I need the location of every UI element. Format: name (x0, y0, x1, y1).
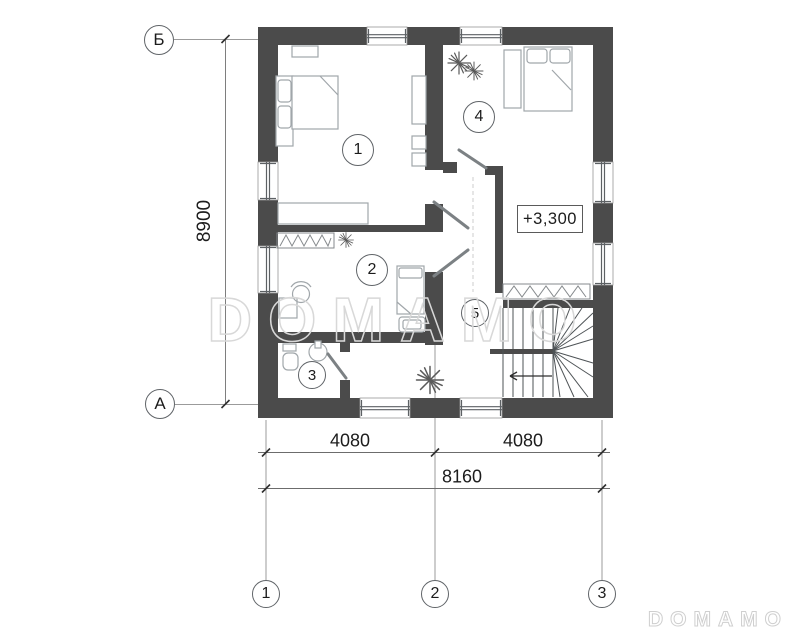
room-number-label: 4 (475, 108, 484, 126)
window-icon (258, 246, 278, 293)
axis-marker-1: 1 (252, 580, 280, 608)
interior-wall (340, 343, 350, 352)
stairwell-wall (495, 175, 503, 293)
dimension-height-total: 8900 (194, 200, 216, 242)
axis-label: Б (153, 30, 164, 50)
floor-plan-canvas: Б А 1 2 3 8900 4080 4080 8160 +3,300 1 2… (0, 0, 800, 640)
elevation-value: +3,300 (523, 210, 577, 229)
axis-label: 1 (262, 585, 271, 603)
axis-marker-b: Б (144, 25, 174, 55)
interior-wall (425, 45, 443, 170)
elevation-mark: +3,300 (517, 205, 583, 233)
room-number-4: 4 (463, 101, 495, 133)
interior-wall (485, 166, 503, 175)
stair-direction-arrow (510, 372, 552, 380)
window-icon (593, 162, 613, 203)
dresser-icon (278, 203, 368, 224)
room-number-2: 2 (356, 254, 388, 286)
toilet-icon (283, 344, 298, 370)
wardrobe-icon (277, 233, 334, 248)
shelf-icon (412, 76, 426, 166)
plant-icon (339, 233, 354, 248)
doors (328, 150, 486, 378)
plant-icon (465, 62, 483, 80)
window-icon (360, 398, 410, 418)
axis-marker-2: 2 (421, 580, 449, 608)
axis-marker-a: А (145, 389, 175, 419)
exterior-wall-top (258, 27, 613, 45)
double-bed-icon (276, 76, 338, 146)
window-icon (593, 243, 613, 285)
room-number-5: 5 (461, 299, 489, 327)
interior-wall (340, 380, 350, 398)
stair-rail-wall (490, 349, 555, 354)
room-number-label: 3 (308, 367, 316, 384)
bed-room4-icon (504, 47, 572, 111)
axis-lines (174, 39, 610, 580)
room-number-label: 2 (368, 261, 377, 279)
single-bed-icon (397, 266, 425, 332)
axis-label: 2 (431, 585, 440, 603)
door-icon (434, 250, 468, 276)
desk-chair-icon (279, 282, 311, 318)
interior-wall (278, 225, 425, 232)
window-icon (460, 27, 502, 45)
window-icon (258, 162, 278, 200)
door-icon (459, 150, 486, 168)
stairwell-wall (503, 300, 593, 308)
wardrobe-icon (503, 284, 590, 299)
room-number-label: 5 (471, 305, 479, 322)
axis-marker-3: 3 (588, 580, 616, 608)
window-icon (367, 27, 407, 45)
dimension-width-total: 8160 (442, 467, 482, 488)
door-icon (328, 354, 346, 378)
room-number-1: 1 (342, 134, 374, 166)
axis-label: 3 (598, 585, 607, 603)
interior-wall (278, 332, 443, 343)
interior-wall (443, 162, 457, 173)
axis-label: А (154, 394, 165, 414)
exterior-wall-right (593, 27, 613, 418)
dimension-width-left: 4080 (330, 431, 370, 452)
dimension-width-right: 4080 (503, 431, 543, 452)
plant-icon (417, 367, 444, 394)
floor-plan-drawing (0, 0, 800, 640)
room-number-label: 1 (354, 141, 363, 159)
exterior-wall-left (258, 27, 278, 418)
sink-icon (309, 341, 327, 361)
room-number-3: 3 (298, 361, 326, 389)
exterior-wall-bottom (258, 398, 613, 418)
radiator-icon (292, 46, 318, 57)
window-icon (460, 398, 502, 418)
